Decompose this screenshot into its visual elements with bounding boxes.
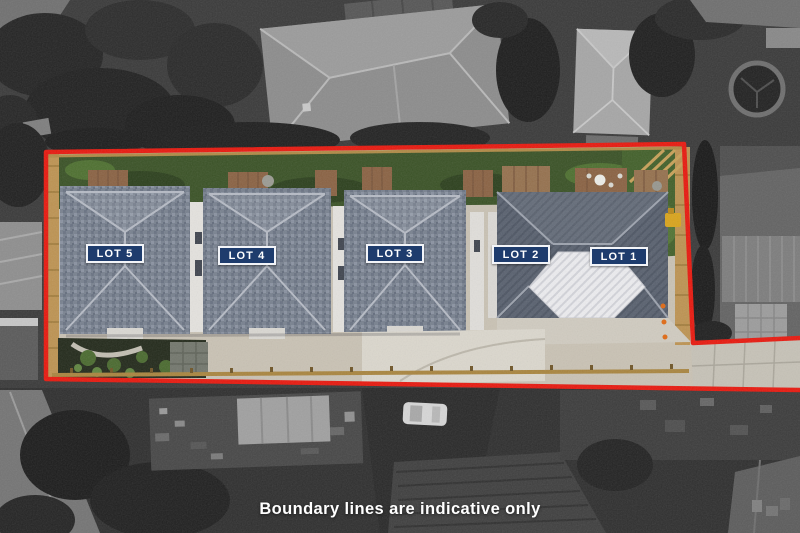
aerial-site-photo: LOT 1 LOT 2 LOT 3 LOT 4 LOT 5 Boundary l… bbox=[0, 0, 800, 533]
lot-3-label: LOT 3 bbox=[366, 244, 424, 263]
photo-grain bbox=[0, 0, 800, 533]
lot-5-label: LOT 5 bbox=[86, 244, 144, 263]
lot-1-label: LOT 1 bbox=[590, 247, 648, 266]
lot-2-label: LOT 2 bbox=[492, 245, 550, 264]
aerial-scene bbox=[0, 0, 800, 533]
lot-4-label: LOT 4 bbox=[218, 246, 276, 265]
disclaimer-caption: Boundary lines are indicative only bbox=[259, 500, 540, 519]
